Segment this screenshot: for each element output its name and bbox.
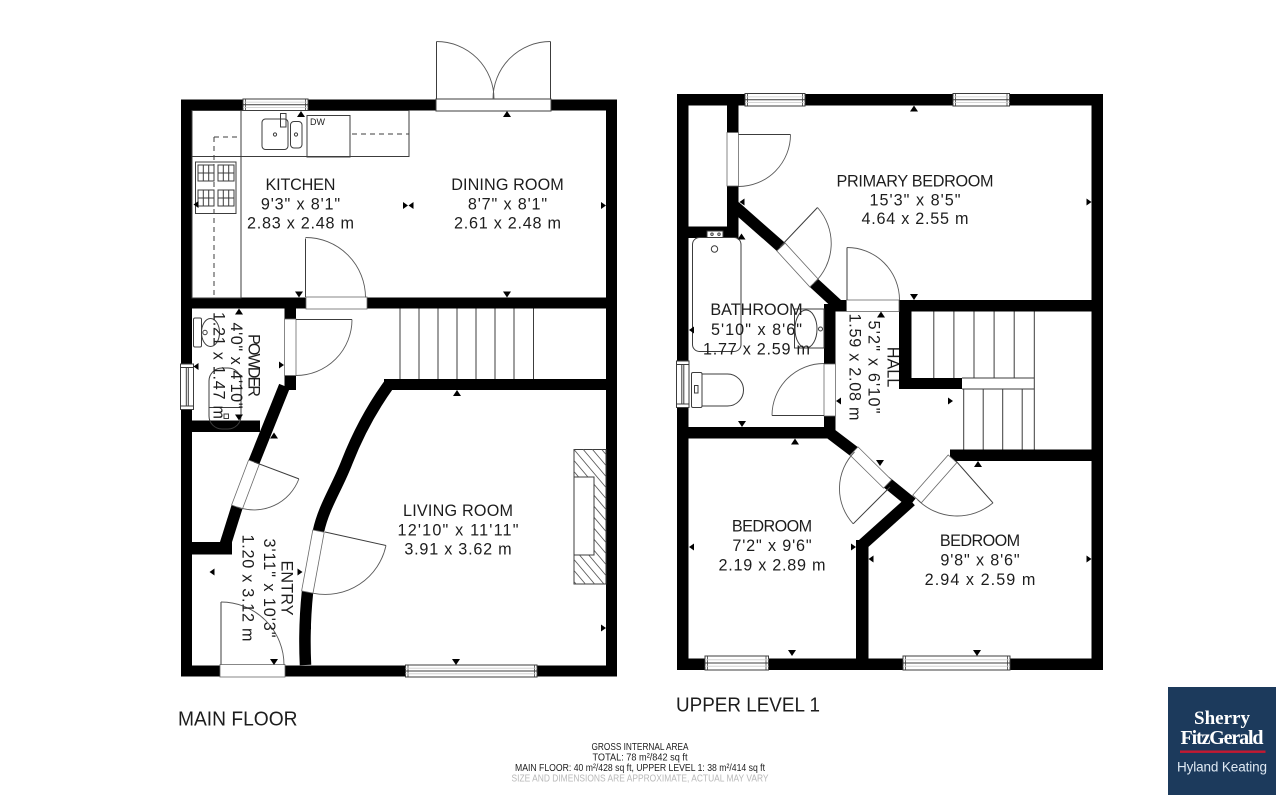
- svg-text:SIZE AND DIMENSIONS ARE APPROX: SIZE AND DIMENSIONS ARE APPROXIMATE, ACT…: [512, 773, 769, 785]
- svg-text:1.20 x 3.12 m: 1.20 x 3.12 m: [239, 535, 257, 642]
- svg-text:4.64 x 2.55 m: 4.64 x 2.55 m: [862, 210, 969, 228]
- svg-text:4'0" x 4'10": 4'0" x 4'10": [227, 323, 245, 409]
- svg-text:UPPER LEVEL 1: UPPER LEVEL 1: [676, 694, 820, 717]
- svg-text:3.91 x 3.62 m: 3.91 x 3.62 m: [404, 541, 511, 559]
- svg-text:HALL: HALL: [884, 347, 902, 388]
- svg-text:9'8" x 8'6": 9'8" x 8'6": [940, 552, 1020, 570]
- svg-text:1.21 x 1.47 m: 1.21 x 1.47 m: [210, 312, 228, 419]
- svg-text:LIVING ROOM: LIVING ROOM: [403, 502, 513, 520]
- svg-text:BATHROOM: BATHROOM: [710, 301, 802, 319]
- svg-text:8'7" x 8'1": 8'7" x 8'1": [468, 196, 548, 214]
- svg-text:FitzGerald: FitzGerald: [1181, 727, 1264, 749]
- svg-text:POWDER: POWDER: [245, 334, 263, 397]
- svg-text:BEDROOM: BEDROOM: [940, 532, 1020, 550]
- svg-text:PRIMARY BEDROOM: PRIMARY BEDROOM: [837, 173, 994, 191]
- svg-text:12'10" x 11'11": 12'10" x 11'11": [398, 522, 519, 540]
- svg-text:MAIN FLOOR: MAIN FLOOR: [178, 708, 298, 731]
- svg-text:BEDROOM: BEDROOM: [732, 518, 812, 536]
- svg-text:ENTRY: ENTRY: [278, 561, 296, 616]
- svg-text:1.59 x 2.08 m: 1.59 x 2.08 m: [846, 314, 864, 421]
- svg-text:KITCHEN: KITCHEN: [266, 176, 336, 194]
- svg-text:2.83 x 2.48 m: 2.83 x 2.48 m: [247, 215, 354, 233]
- svg-text:2.94 x 2.59 m: 2.94 x 2.59 m: [925, 571, 1036, 589]
- svg-text:2.19 x 2.89 m: 2.19 x 2.89 m: [719, 557, 826, 575]
- svg-text:1.77 x 2.59 m: 1.77 x 2.59 m: [703, 341, 810, 359]
- svg-text:5'10" x 8'6": 5'10" x 8'6": [711, 321, 802, 339]
- svg-text:15'3" x 8'5": 15'3" x 8'5": [869, 192, 960, 210]
- svg-text:7'2" x 9'6": 7'2" x 9'6": [732, 537, 812, 555]
- svg-text:DW: DW: [310, 117, 325, 127]
- svg-text:5'2" x 6'10": 5'2" x 6'10": [865, 321, 883, 414]
- svg-text:DINING ROOM: DINING ROOM: [451, 176, 564, 194]
- svg-text:3'11" x 10'3": 3'11" x 10'3": [260, 539, 278, 638]
- svg-text:Hyland Keating: Hyland Keating: [1177, 760, 1267, 775]
- svg-text:9'3" x 8'1": 9'3" x 8'1": [261, 196, 341, 214]
- svg-text:2.61 x 2.48 m: 2.61 x 2.48 m: [454, 215, 561, 233]
- svg-text:Sherry: Sherry: [1194, 708, 1251, 729]
